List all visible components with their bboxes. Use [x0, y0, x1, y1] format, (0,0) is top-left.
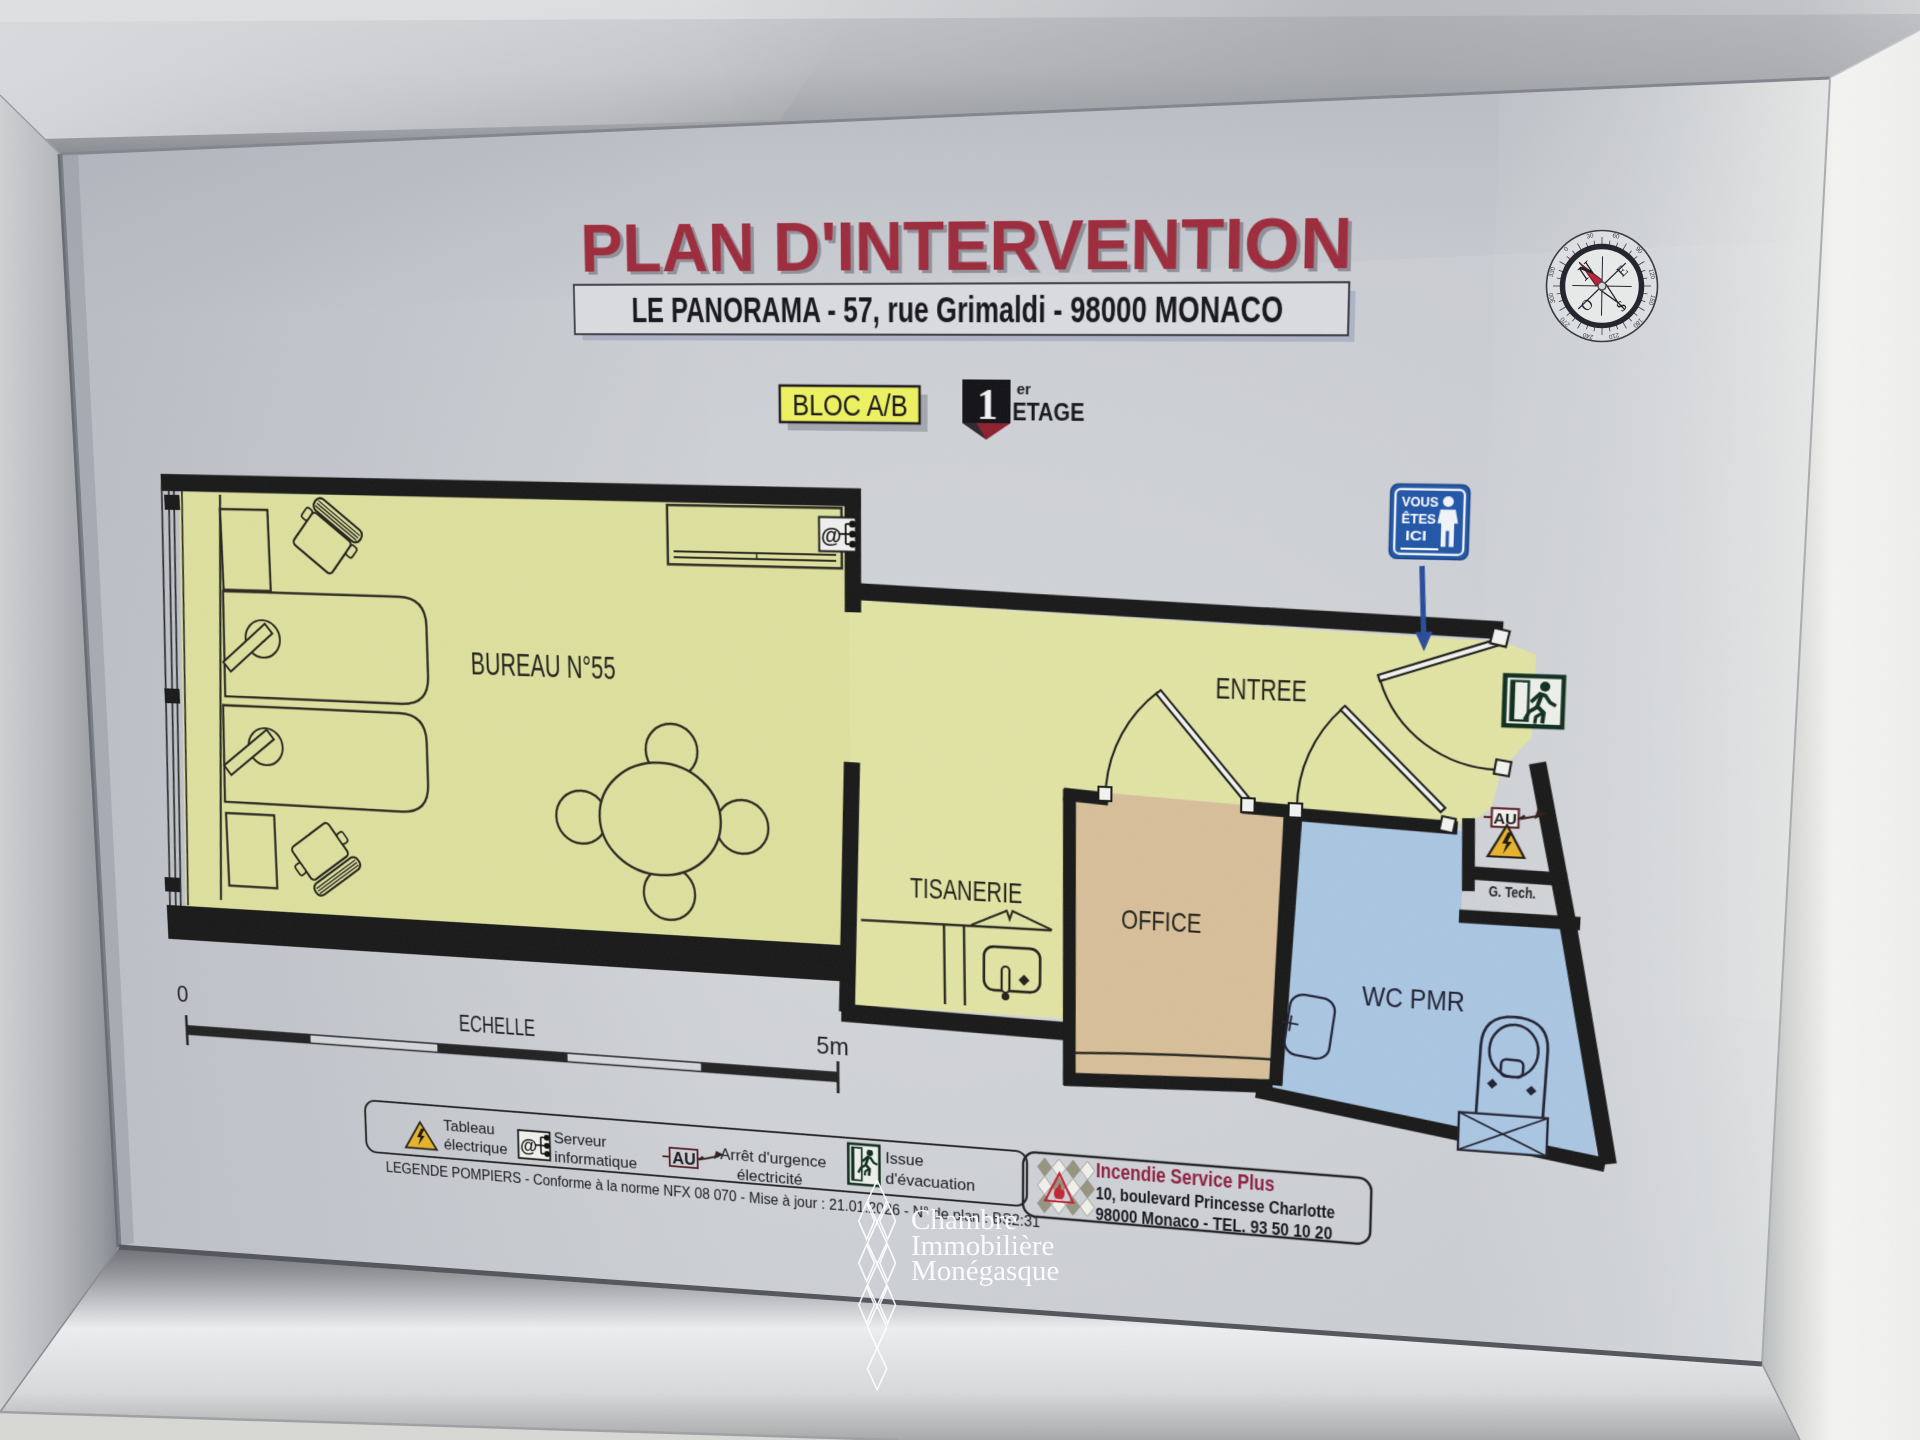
svg-text:ÊTES: ÊTES: [1401, 509, 1436, 527]
svg-text:@: @: [520, 1134, 538, 1156]
svg-text:G. Tech.: G. Tech.: [1488, 883, 1536, 902]
svg-text:5m: 5m: [816, 1032, 849, 1061]
svg-text:0: 0: [176, 981, 189, 1007]
svg-text:OFFICE: OFFICE: [1121, 905, 1202, 940]
svg-text:électrique: électrique: [444, 1136, 508, 1158]
svg-text:ICI: ICI: [1405, 528, 1427, 545]
svg-text:WC PMR: WC PMR: [1362, 981, 1466, 1018]
svg-text:BLOC A/B: BLOC A/B: [792, 389, 908, 423]
svg-text:er: er: [1017, 381, 1032, 398]
svg-text:LE PANORAMA - 57, rue Grimaldi: LE PANORAMA - 57, rue Grimaldi - 98000 M…: [631, 288, 1283, 330]
svg-text:@: @: [821, 524, 842, 548]
svg-text:PLAN D'INTERVENTION: PLAN D'INTERVENTION: [580, 203, 1354, 286]
svg-text:AU: AU: [1493, 810, 1517, 828]
svg-text:ECHELLE: ECHELLE: [458, 1010, 535, 1042]
svg-text:ENTREE: ENTREE: [1215, 670, 1307, 708]
svg-text:VOUS: VOUS: [1402, 493, 1439, 510]
svg-text:1: 1: [977, 382, 998, 430]
svg-text:Issue: Issue: [885, 1150, 923, 1170]
svg-text:AU: AU: [672, 1148, 696, 1169]
svg-text:BUREAU N°55: BUREAU N°55: [470, 645, 616, 687]
svg-text:TISANERIE: TISANERIE: [910, 872, 1023, 910]
svg-text:Serveur: Serveur: [554, 1130, 607, 1151]
svg-text:Tableau: Tableau: [443, 1118, 495, 1139]
svg-text:ETAGE: ETAGE: [1012, 400, 1084, 427]
svg-text:électricité: électricité: [737, 1167, 803, 1189]
